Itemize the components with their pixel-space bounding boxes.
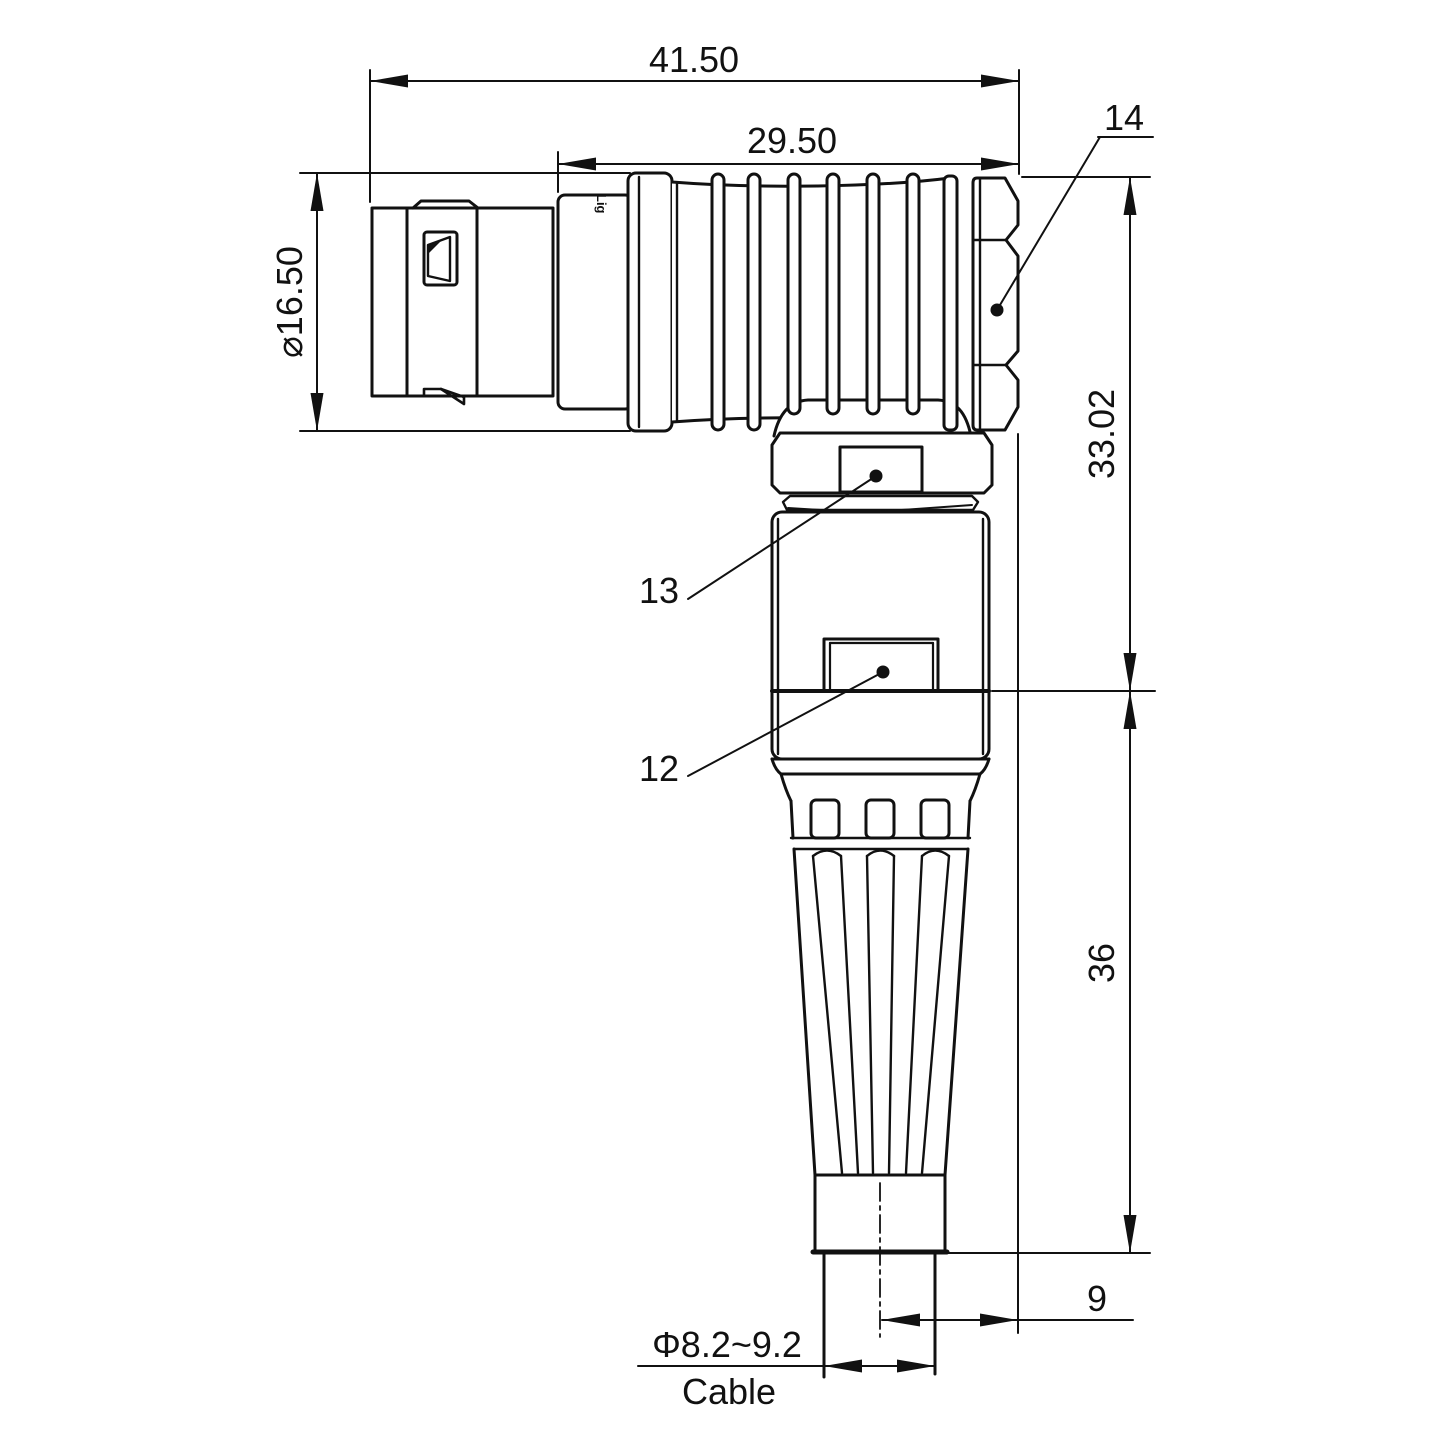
callout-12-dot <box>877 666 890 679</box>
grip-ring-rear <box>944 176 957 430</box>
technical-drawing-canvas: Lightany <box>0 0 1440 1440</box>
callout-13-text: 13 <box>639 570 679 611</box>
connector-part <box>372 173 1018 1377</box>
cable-label-text: Cable <box>682 1371 776 1412</box>
dim-overall-length: 41.50 <box>370 39 1019 202</box>
dim-cable-diameter-text: Φ8.2~9.2 <box>652 1324 802 1365</box>
strain-relief-boot <box>781 774 980 1175</box>
elbow-collar <box>772 433 992 493</box>
boot-outer-right <box>945 849 968 1175</box>
collar-latch <box>840 447 922 492</box>
elbow-body <box>772 512 989 774</box>
callout-13-dot <box>870 470 883 483</box>
shell-engraving-text: Lig <box>594 194 609 214</box>
dim-cable-diameter: Φ8.2~9.2 Cable <box>638 1324 935 1412</box>
dim-axis-offset-text: 9 <box>1087 1278 1107 1319</box>
front-plug <box>372 201 553 404</box>
outer-sleeve <box>558 195 632 409</box>
dim-overall-length-text: 41.50 <box>649 39 739 80</box>
dim-rear-body-length-text: 29.50 <box>747 120 837 161</box>
boot-outer-left <box>794 849 815 1175</box>
dim-lower-height-text: 36 <box>1081 943 1122 983</box>
dim-upper-height-text: 33.02 <box>1081 389 1122 479</box>
dim-shell-diameter-text: ⌀16.50 <box>269 246 310 358</box>
body-latch <box>824 639 938 691</box>
callout-12-text: 12 <box>639 748 679 789</box>
callout-14-text: 14 <box>1104 97 1144 138</box>
grip-ring-front <box>628 173 672 431</box>
callout-14-dot <box>991 304 1004 317</box>
drawing-page: Lightany <box>0 0 1440 1440</box>
